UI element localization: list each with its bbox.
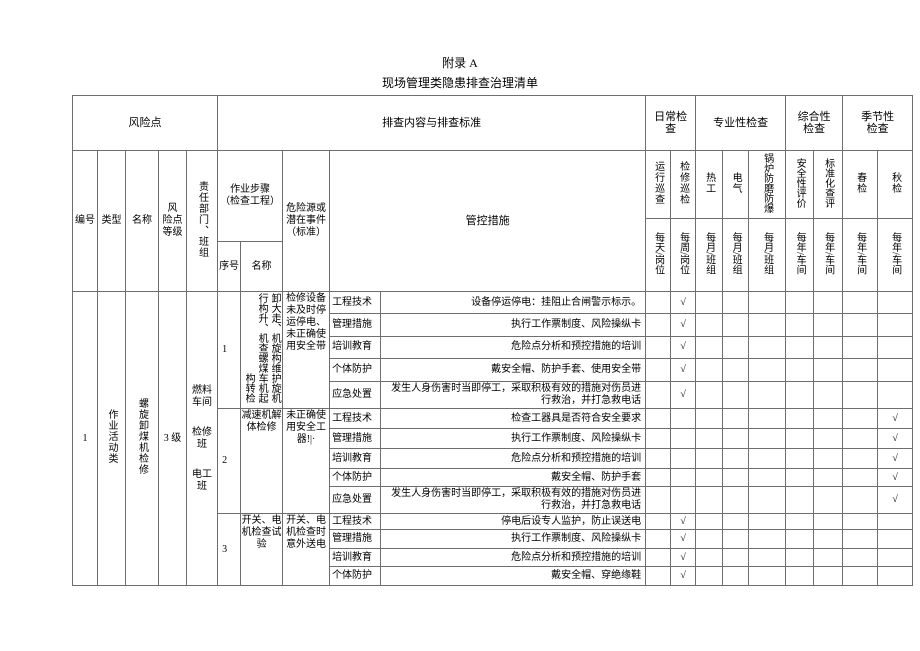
check-cell-empty bbox=[786, 487, 814, 514]
check-cell-empty bbox=[749, 359, 786, 381]
freq-operation-patrol: 每天/岗位 bbox=[646, 219, 671, 292]
measure-category: 工程技术 bbox=[330, 514, 381, 530]
check-cell-empty bbox=[843, 469, 878, 487]
check-cell-empty bbox=[749, 530, 786, 549]
measure-text: 危险点分析和预控措施的培训 bbox=[381, 549, 646, 567]
check-cell-empty bbox=[749, 487, 786, 514]
check-cell-empty bbox=[749, 409, 786, 429]
check-cell-empty bbox=[814, 292, 843, 314]
check-cell-empty bbox=[814, 514, 843, 530]
measure-text: 设备停运停电：挂阻止合闸警示标示。 bbox=[381, 292, 646, 314]
check-cell-empty bbox=[843, 549, 878, 567]
check-cell: √ bbox=[671, 359, 696, 381]
header-comprehensive-check: 综合性检查 bbox=[786, 96, 843, 151]
check-cell-empty bbox=[646, 314, 671, 336]
step-name-vertical: 卸大走、机旋构维护旋机行构升、机查螺煤车机起构转检 bbox=[242, 293, 281, 403]
check-cell-empty bbox=[723, 487, 749, 514]
col-header-spring-check: 春检 bbox=[843, 151, 878, 219]
check-cell-empty bbox=[786, 514, 814, 530]
dept-group: 电工班 bbox=[192, 469, 213, 493]
cell-step-no: 1 bbox=[218, 292, 241, 409]
measure-text: 戴安全帽、穿绝缘鞋 bbox=[381, 567, 646, 586]
measure-text: 戴安全帽、防护手套 bbox=[381, 469, 646, 487]
check-cell-empty bbox=[696, 292, 723, 314]
check-cell-empty bbox=[646, 409, 671, 429]
header-seasonal-check: 季节性检查 bbox=[843, 96, 913, 151]
measure-category: 管理措施 bbox=[330, 314, 381, 336]
check-cell-empty bbox=[814, 469, 843, 487]
check-cell-empty bbox=[814, 381, 843, 409]
check-cell-empty bbox=[646, 381, 671, 409]
check-cell-empty bbox=[723, 530, 749, 549]
check-cell-empty bbox=[696, 469, 723, 487]
check-cell-empty bbox=[671, 409, 696, 429]
check-cell-empty bbox=[646, 487, 671, 514]
header-daily-check: 日常检查 bbox=[646, 96, 696, 151]
col-header-measures: 管控措施 bbox=[330, 151, 646, 292]
check-cell-empty bbox=[786, 429, 814, 449]
check-cell-empty bbox=[814, 530, 843, 549]
check-cell-empty bbox=[749, 549, 786, 567]
check-cell-empty bbox=[878, 381, 913, 409]
measure-category: 管理措施 bbox=[330, 530, 381, 549]
freq-spring-check: 每年/车间 bbox=[843, 219, 878, 292]
check-cell-empty bbox=[786, 409, 814, 429]
col-header-level: 风 险点 等级 bbox=[159, 151, 187, 292]
check-cell-empty bbox=[723, 469, 749, 487]
col-header-dept: 责任部门、班组 bbox=[187, 151, 218, 292]
check-cell-empty bbox=[749, 314, 786, 336]
measure-category: 培训教育 bbox=[330, 336, 381, 358]
measure-category: 工程技术 bbox=[330, 292, 381, 314]
check-cell-empty bbox=[696, 429, 723, 449]
check-cell-empty bbox=[814, 449, 843, 469]
check-cell-empty bbox=[723, 429, 749, 449]
check-cell-empty bbox=[843, 567, 878, 586]
check-cell-empty bbox=[814, 549, 843, 567]
check-cell-empty bbox=[786, 469, 814, 487]
check-cell-empty bbox=[696, 487, 723, 514]
check-cell-empty bbox=[843, 359, 878, 381]
col-header-step-no: 序号 bbox=[218, 242, 241, 292]
check-cell-empty bbox=[786, 530, 814, 549]
cell-hazard: 检修设备未及时停运停电、未正确使用安全带 bbox=[283, 292, 330, 409]
cell-step-no: 2 bbox=[218, 409, 241, 514]
check-cell-empty bbox=[814, 487, 843, 514]
check-cell-empty bbox=[696, 449, 723, 469]
check-cell: √ bbox=[671, 336, 696, 358]
dept-groups: 燃料车间 检修班 电工班 bbox=[192, 385, 213, 493]
check-cell-empty bbox=[696, 314, 723, 336]
cell-row-id: 1 bbox=[73, 292, 98, 586]
measure-text: 停电后设专人监护，防止误送电 bbox=[381, 514, 646, 530]
header-professional-check: 专业性检查 bbox=[696, 96, 786, 151]
check-cell: √ bbox=[878, 409, 913, 429]
check-cell-empty bbox=[696, 530, 723, 549]
measure-text: 戴安全帽、防护手套、使用安全带 bbox=[381, 359, 646, 381]
freq-maintenance-patrol: 每周/岗位 bbox=[671, 219, 696, 292]
check-cell-empty bbox=[843, 530, 878, 549]
check-cell-empty bbox=[749, 567, 786, 586]
check-cell-empty bbox=[878, 314, 913, 336]
check-cell-empty bbox=[786, 359, 814, 381]
measure-text: 危险点分析和预控措施的培训 bbox=[381, 336, 646, 358]
check-cell-empty bbox=[786, 567, 814, 586]
check-cell-empty bbox=[696, 514, 723, 530]
check-cell: √ bbox=[671, 514, 696, 530]
appendix-title: 附录 A bbox=[0, 53, 920, 73]
check-cell-empty bbox=[646, 530, 671, 549]
freq-electrical: 每月/班组 bbox=[723, 219, 749, 292]
check-cell-empty bbox=[646, 429, 671, 449]
check-cell-empty bbox=[878, 514, 913, 530]
check-cell-empty bbox=[696, 336, 723, 358]
check-cell-empty bbox=[646, 469, 671, 487]
check-cell: √ bbox=[671, 530, 696, 549]
check-cell-empty bbox=[646, 359, 671, 381]
check-cell-empty bbox=[696, 567, 723, 586]
check-cell: √ bbox=[671, 381, 696, 409]
check-cell-empty bbox=[843, 314, 878, 336]
check-cell-empty bbox=[723, 449, 749, 469]
check-cell-empty bbox=[646, 449, 671, 469]
measure-text: 危险点分析和预控措施的培训 bbox=[381, 449, 646, 469]
check-cell-empty bbox=[814, 409, 843, 429]
col-header-hazard: 危险源或潜在事件（标准） bbox=[283, 151, 330, 292]
check-cell-empty bbox=[843, 292, 878, 314]
check-cell-empty bbox=[878, 549, 913, 567]
col-header-name: 名称 bbox=[126, 151, 159, 292]
check-cell-empty bbox=[723, 514, 749, 530]
measure-category: 应急处置 bbox=[330, 381, 381, 409]
measure-category: 管理措施 bbox=[330, 429, 381, 449]
freq-safety-eval: 每年/车间 bbox=[786, 219, 814, 292]
measure-category: 应急处置 bbox=[330, 487, 381, 514]
check-cell-empty bbox=[723, 549, 749, 567]
header-risk-point: 风险点 bbox=[73, 96, 218, 151]
check-cell-empty bbox=[671, 429, 696, 449]
check-cell-empty bbox=[646, 292, 671, 314]
col-header-maintenance-patrol: 检修巡检 bbox=[671, 151, 696, 219]
check-cell-empty bbox=[749, 292, 786, 314]
check-cell-empty bbox=[786, 381, 814, 409]
document-page: 附录 A 现场管理类隐患排查治理清单 风险点 排查内容与排查标准 日常检查 专业… bbox=[0, 0, 920, 651]
col-header-operation-patrol: 运行巡查 bbox=[646, 151, 671, 219]
check-cell-empty bbox=[814, 336, 843, 358]
check-cell-empty bbox=[749, 381, 786, 409]
cell-step-name: 开关、电机检查试验 bbox=[241, 514, 283, 586]
check-cell-empty bbox=[723, 381, 749, 409]
dept-group: 燃料车间 bbox=[192, 385, 213, 409]
check-cell-empty bbox=[878, 530, 913, 549]
check-cell-empty bbox=[646, 336, 671, 358]
check-cell-empty bbox=[843, 381, 878, 409]
check-cell: √ bbox=[878, 429, 913, 449]
check-cell: √ bbox=[671, 292, 696, 314]
check-cell-empty bbox=[723, 314, 749, 336]
check-cell-empty bbox=[843, 514, 878, 530]
check-cell: √ bbox=[671, 549, 696, 567]
check-cell-empty bbox=[786, 292, 814, 314]
check-cell-empty bbox=[646, 514, 671, 530]
dept-group: 检修班 bbox=[192, 427, 213, 451]
check-cell: √ bbox=[671, 314, 696, 336]
col-header-electrical: 电气 bbox=[723, 151, 749, 219]
check-cell-empty bbox=[843, 336, 878, 358]
cell-step-name: 减速机解体检修 bbox=[241, 409, 283, 514]
measure-category: 个体防护 bbox=[330, 567, 381, 586]
check-cell-empty bbox=[814, 359, 843, 381]
document-titles: 附录 A 现场管理类隐患排查治理清单 bbox=[0, 53, 920, 93]
cell-hazard: 开关、电机检查时意外送电 bbox=[283, 514, 330, 586]
check-cell-empty bbox=[671, 487, 696, 514]
check-cell-empty bbox=[696, 549, 723, 567]
col-header-standard-eval: 标准化查评 bbox=[814, 151, 843, 219]
check-cell-empty bbox=[878, 567, 913, 586]
check-cell-empty bbox=[749, 449, 786, 469]
check-cell-empty bbox=[696, 381, 723, 409]
col-header-steps: 作业步骤 （检查工程） bbox=[218, 151, 283, 242]
measure-text: 执行工作票制度、风险操纵卡 bbox=[381, 530, 646, 549]
check-cell-empty bbox=[749, 514, 786, 530]
check-cell: √ bbox=[878, 469, 913, 487]
hazard-inspection-table: 风险点 排查内容与排查标准 日常检查 专业性检查 综合性检查 季节性检查 编号 … bbox=[72, 95, 913, 586]
cell-dept: 燃料车间 检修班 电工班 bbox=[187, 292, 218, 586]
check-cell-empty bbox=[749, 469, 786, 487]
check-cell-empty bbox=[843, 487, 878, 514]
measure-text: 发生人身伤害时当即停工，采取积极有效的措施对伤员进行救治，并打急救电话 bbox=[381, 381, 646, 409]
check-cell-empty bbox=[696, 359, 723, 381]
freq-standard-eval: 每年/车间 bbox=[814, 219, 843, 292]
check-cell-empty bbox=[786, 314, 814, 336]
check-cell-empty bbox=[814, 429, 843, 449]
measure-text: 发生人身伤害时当即停工，采取积极有效的措施对伤员进行救治，并打急救电话 bbox=[381, 487, 646, 514]
col-header-boiler: 锅炉防磨防爆 bbox=[749, 151, 786, 219]
cell-risk-level: 3 级 bbox=[159, 292, 187, 586]
measure-category: 培训教育 bbox=[330, 449, 381, 469]
check-cell-empty bbox=[671, 449, 696, 469]
measure-category: 培训教育 bbox=[330, 549, 381, 567]
col-header-step-name: 名称 bbox=[241, 242, 283, 292]
check-cell-empty bbox=[696, 409, 723, 429]
cell-hazard: 未正确使用安全工器!|· bbox=[283, 409, 330, 514]
check-cell-empty bbox=[646, 567, 671, 586]
check-cell-empty bbox=[878, 359, 913, 381]
check-cell-empty bbox=[723, 409, 749, 429]
measure-text: 检查工器具是否符合安全要求 bbox=[381, 409, 646, 429]
measure-text: 执行工作票制度、风险操纵卡 bbox=[381, 314, 646, 336]
check-cell-empty bbox=[723, 292, 749, 314]
col-header-safety-eval: 安全性评价 bbox=[786, 151, 814, 219]
check-cell-empty bbox=[786, 449, 814, 469]
measure-text: 执行工作票制度、风险操纵卡 bbox=[381, 429, 646, 449]
check-cell: √ bbox=[878, 449, 913, 469]
check-cell-empty bbox=[843, 409, 878, 429]
freq-thermal: 每月/班组 bbox=[696, 219, 723, 292]
check-cell-empty bbox=[646, 549, 671, 567]
check-cell-empty bbox=[749, 429, 786, 449]
cell-step-name: 卸大走、机旋构维护旋机行构升、机查螺煤车机起构转检 bbox=[241, 292, 283, 409]
cell-step-no: 3 bbox=[218, 514, 241, 586]
cell-risk-name: 螺旋卸煤机检修 bbox=[126, 292, 159, 586]
check-cell-empty bbox=[723, 336, 749, 358]
check-cell-empty bbox=[786, 336, 814, 358]
check-cell-empty bbox=[843, 429, 878, 449]
col-header-thermal: 热工 bbox=[696, 151, 723, 219]
freq-boiler: 每月/班组 bbox=[749, 219, 786, 292]
check-cell-empty bbox=[723, 359, 749, 381]
check-cell-empty bbox=[814, 314, 843, 336]
col-header-type: 类型 bbox=[98, 151, 126, 292]
check-cell-empty bbox=[843, 449, 878, 469]
measure-category: 工程技术 bbox=[330, 409, 381, 429]
check-cell-empty bbox=[878, 292, 913, 314]
cell-risk-type: 作业活动类 bbox=[98, 292, 126, 586]
measure-category: 个体防护 bbox=[330, 469, 381, 487]
freq-autumn-check: 每年/车间 bbox=[878, 219, 913, 292]
check-cell-empty bbox=[814, 567, 843, 586]
check-cell-empty bbox=[878, 336, 913, 358]
check-cell-empty bbox=[749, 336, 786, 358]
check-cell-empty bbox=[671, 469, 696, 487]
document-subtitle: 现场管理类隐患排查治理清单 bbox=[0, 73, 920, 93]
measure-category: 个体防护 bbox=[330, 359, 381, 381]
check-cell-empty bbox=[723, 567, 749, 586]
col-header-id: 编号 bbox=[73, 151, 98, 292]
check-cell: √ bbox=[671, 567, 696, 586]
check-cell-empty bbox=[786, 549, 814, 567]
header-inspection-content: 排查内容与排查标准 bbox=[218, 96, 646, 151]
col-header-autumn-check: 秋检 bbox=[878, 151, 913, 219]
check-cell: √ bbox=[878, 487, 913, 514]
